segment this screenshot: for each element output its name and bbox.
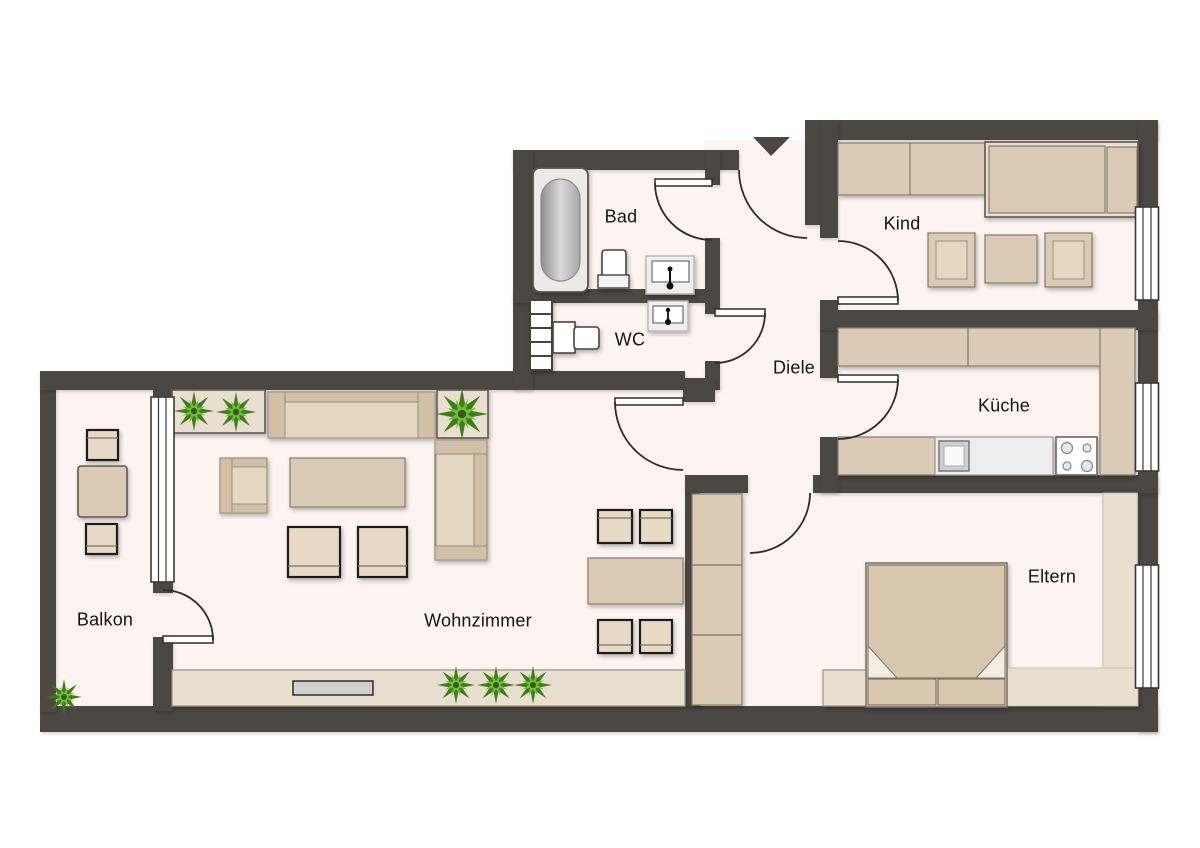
wall — [40, 706, 1158, 732]
wall — [153, 581, 173, 593]
eltern-floor — [690, 480, 1148, 710]
wall — [513, 150, 533, 390]
wall — [685, 475, 700, 706]
room-label-wohnzimmer: Wohnzimmer — [424, 611, 532, 632]
wall — [820, 310, 1158, 330]
wall — [805, 120, 1158, 140]
wall — [820, 120, 838, 238]
wall — [805, 140, 820, 225]
room-label-kind: Kind — [884, 214, 921, 235]
room-label-kueche: Küche — [978, 396, 1030, 417]
wall — [513, 289, 715, 303]
wall — [820, 437, 838, 493]
room-label-balkon: Balkon — [77, 610, 133, 631]
room-label-diele: Diele — [773, 358, 815, 379]
wall — [685, 475, 748, 493]
wall — [40, 373, 56, 712]
wall — [153, 637, 173, 711]
room-label-wc: WC — [615, 330, 645, 351]
wall — [683, 378, 715, 402]
wall — [1138, 120, 1158, 732]
kind-floor — [830, 140, 1148, 315]
floorplan: Bad WC Diele Kind Küche Wohnzimmer Balko… — [0, 0, 1200, 848]
wall — [705, 238, 720, 314]
wall — [153, 388, 173, 399]
wall — [813, 475, 1158, 493]
wall — [40, 371, 685, 390]
room-label-eltern: Eltern — [1028, 567, 1076, 588]
wall — [705, 150, 720, 185]
bad-wc-floor — [513, 150, 715, 390]
room-label-bad: Bad — [605, 207, 638, 228]
